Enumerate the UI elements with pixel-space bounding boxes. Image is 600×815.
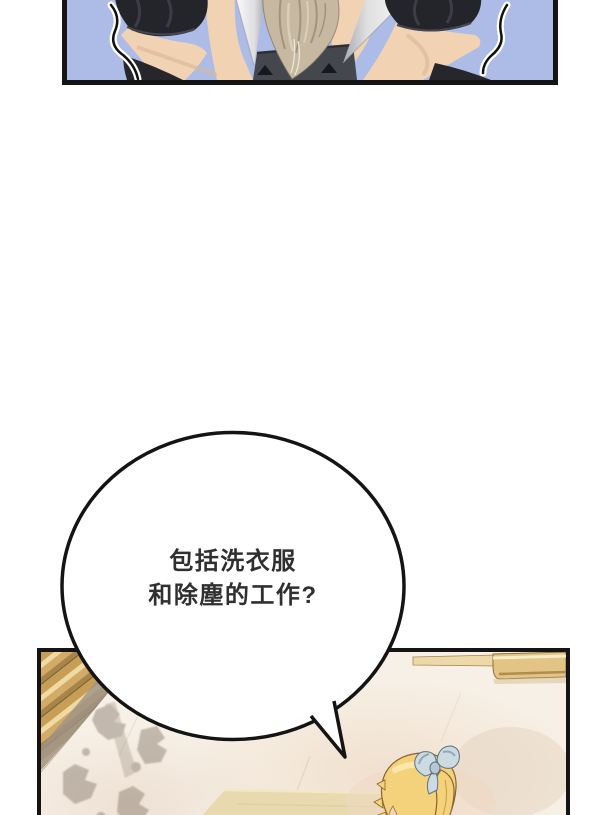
bubble-text-line-2: 和除塵的工作? (63, 579, 403, 613)
speech-bubble-text: 包括洗衣服 和除塵的工作? (63, 545, 403, 613)
speech-bubble (0, 0, 600, 815)
comic-page: 包括洗衣服 和除塵的工作? (0, 0, 600, 815)
bubble-text-line-1: 包括洗衣服 (63, 545, 403, 579)
